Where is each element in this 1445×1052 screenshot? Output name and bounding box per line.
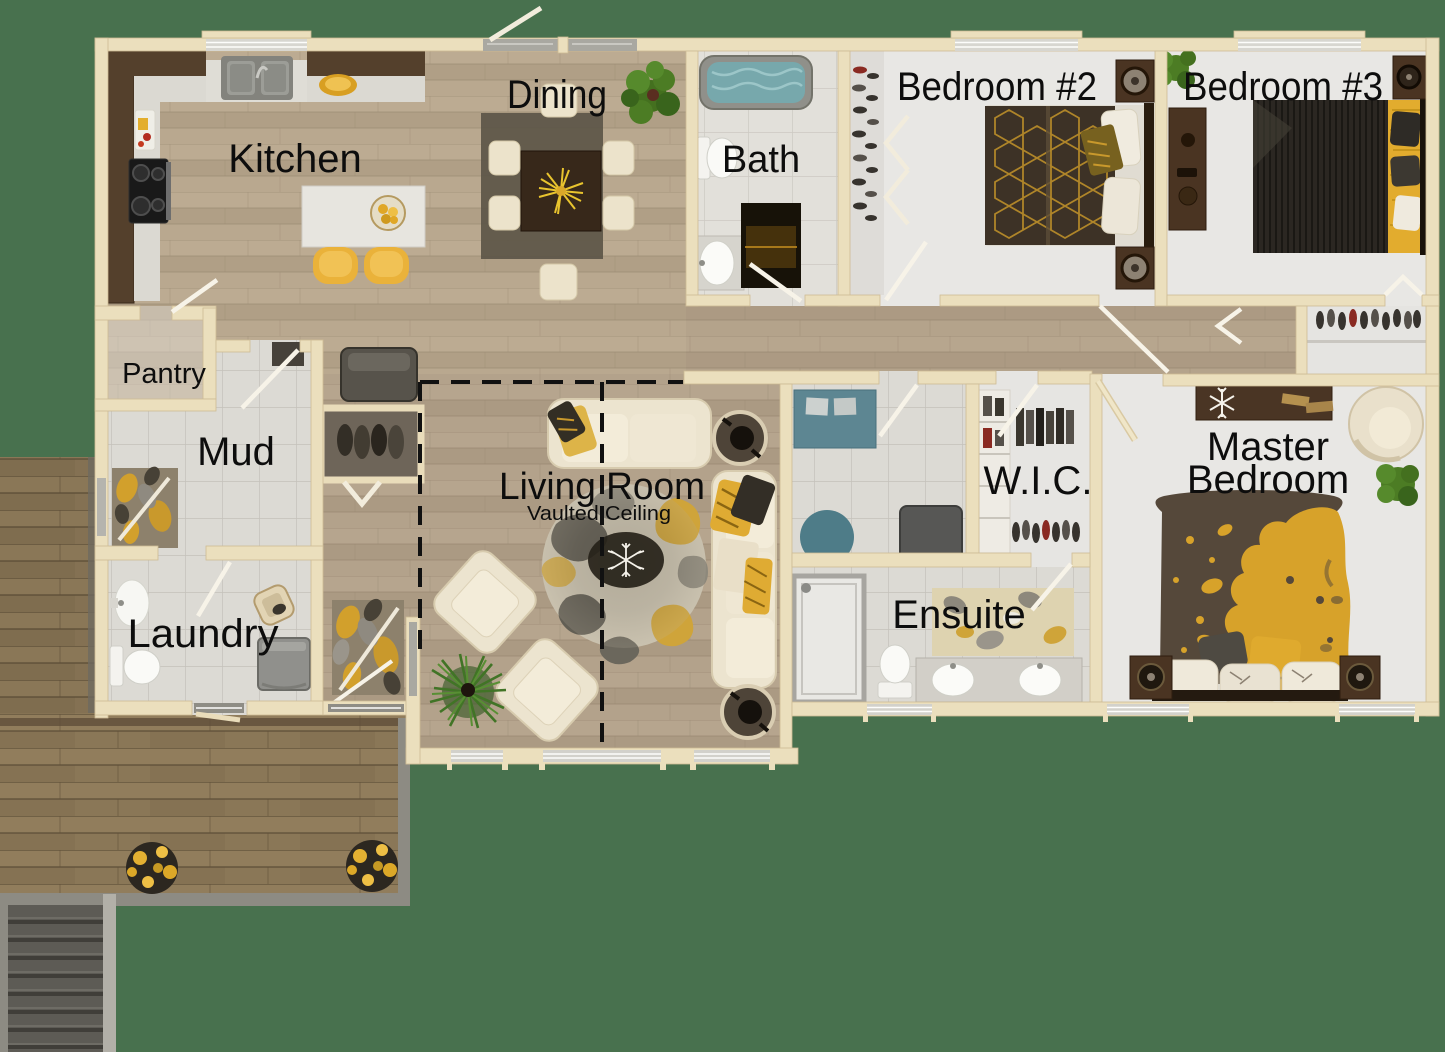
svg-text:Pantry: Pantry xyxy=(122,358,206,390)
svg-text:Bedroom: Bedroom xyxy=(1187,458,1349,502)
svg-text:Dining: Dining xyxy=(507,73,607,117)
svg-text:Ensuite: Ensuite xyxy=(892,593,1025,637)
svg-text:W.I.C.: W.I.C. xyxy=(984,459,1093,503)
svg-text:Mud: Mud xyxy=(197,430,275,474)
svg-text:Bath: Bath xyxy=(722,139,800,181)
svg-text:Bedroom #2: Bedroom #2 xyxy=(897,65,1097,109)
svg-text:Living Room: Living Room xyxy=(499,466,705,508)
svg-text:Vaulted Ceiling: Vaulted Ceiling xyxy=(527,503,671,525)
svg-text:Kitchen: Kitchen xyxy=(228,137,361,181)
svg-text:Bedroom #3: Bedroom #3 xyxy=(1183,65,1383,109)
svg-text:Laundry: Laundry xyxy=(128,612,279,656)
